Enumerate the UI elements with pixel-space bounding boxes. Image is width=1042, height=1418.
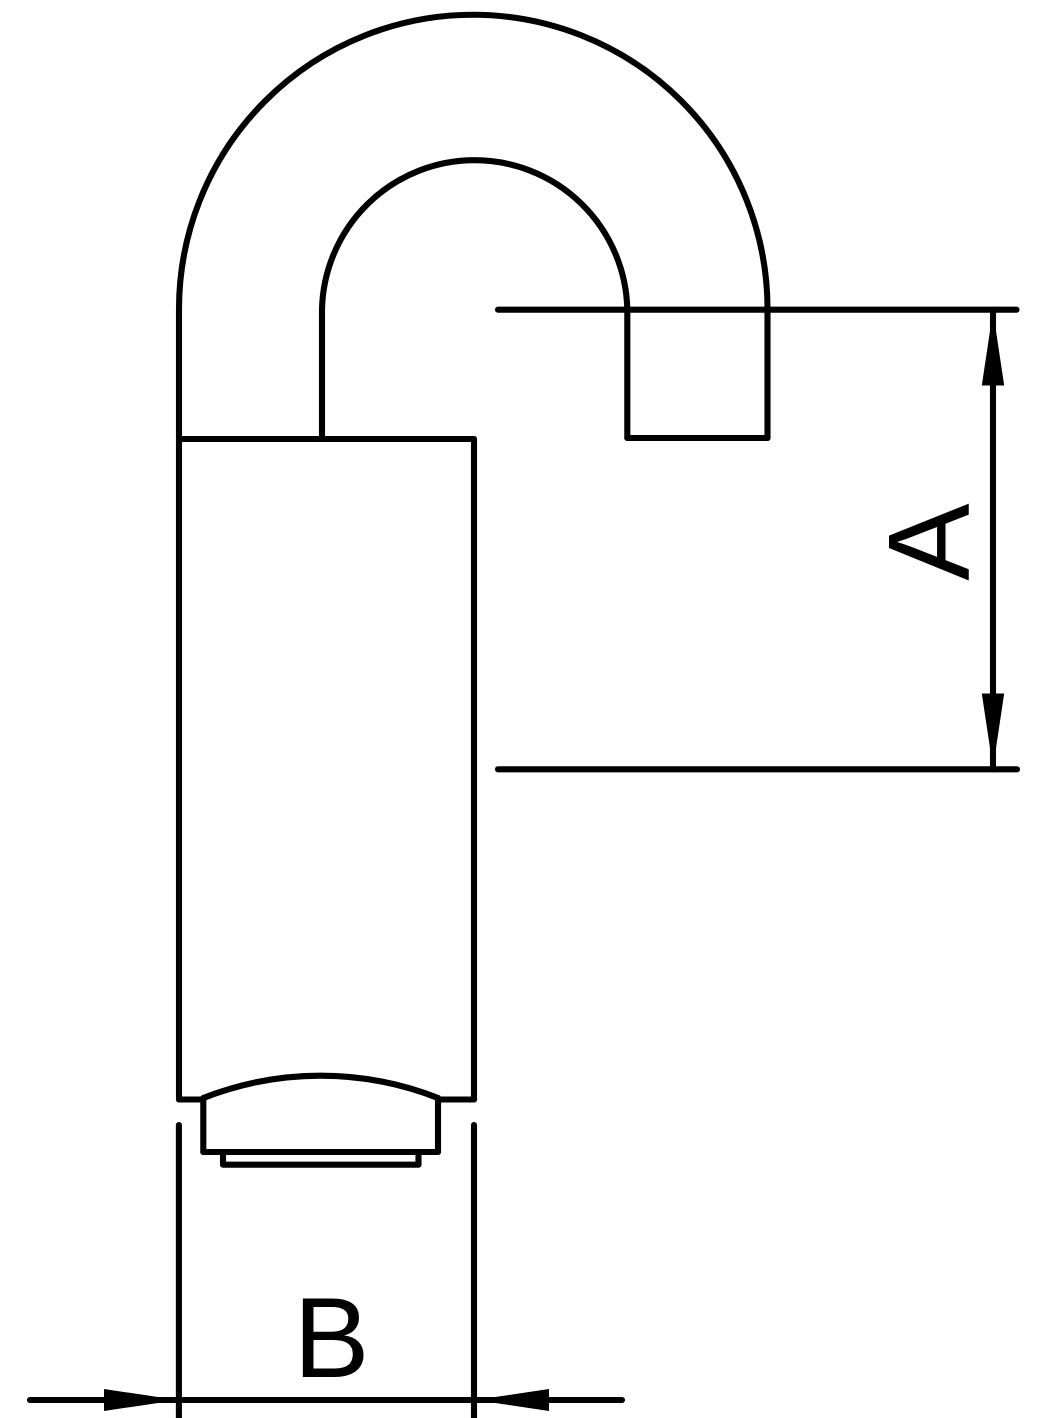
svg-text:B: B — [293, 1275, 369, 1402]
svg-text:A: A — [864, 503, 994, 581]
